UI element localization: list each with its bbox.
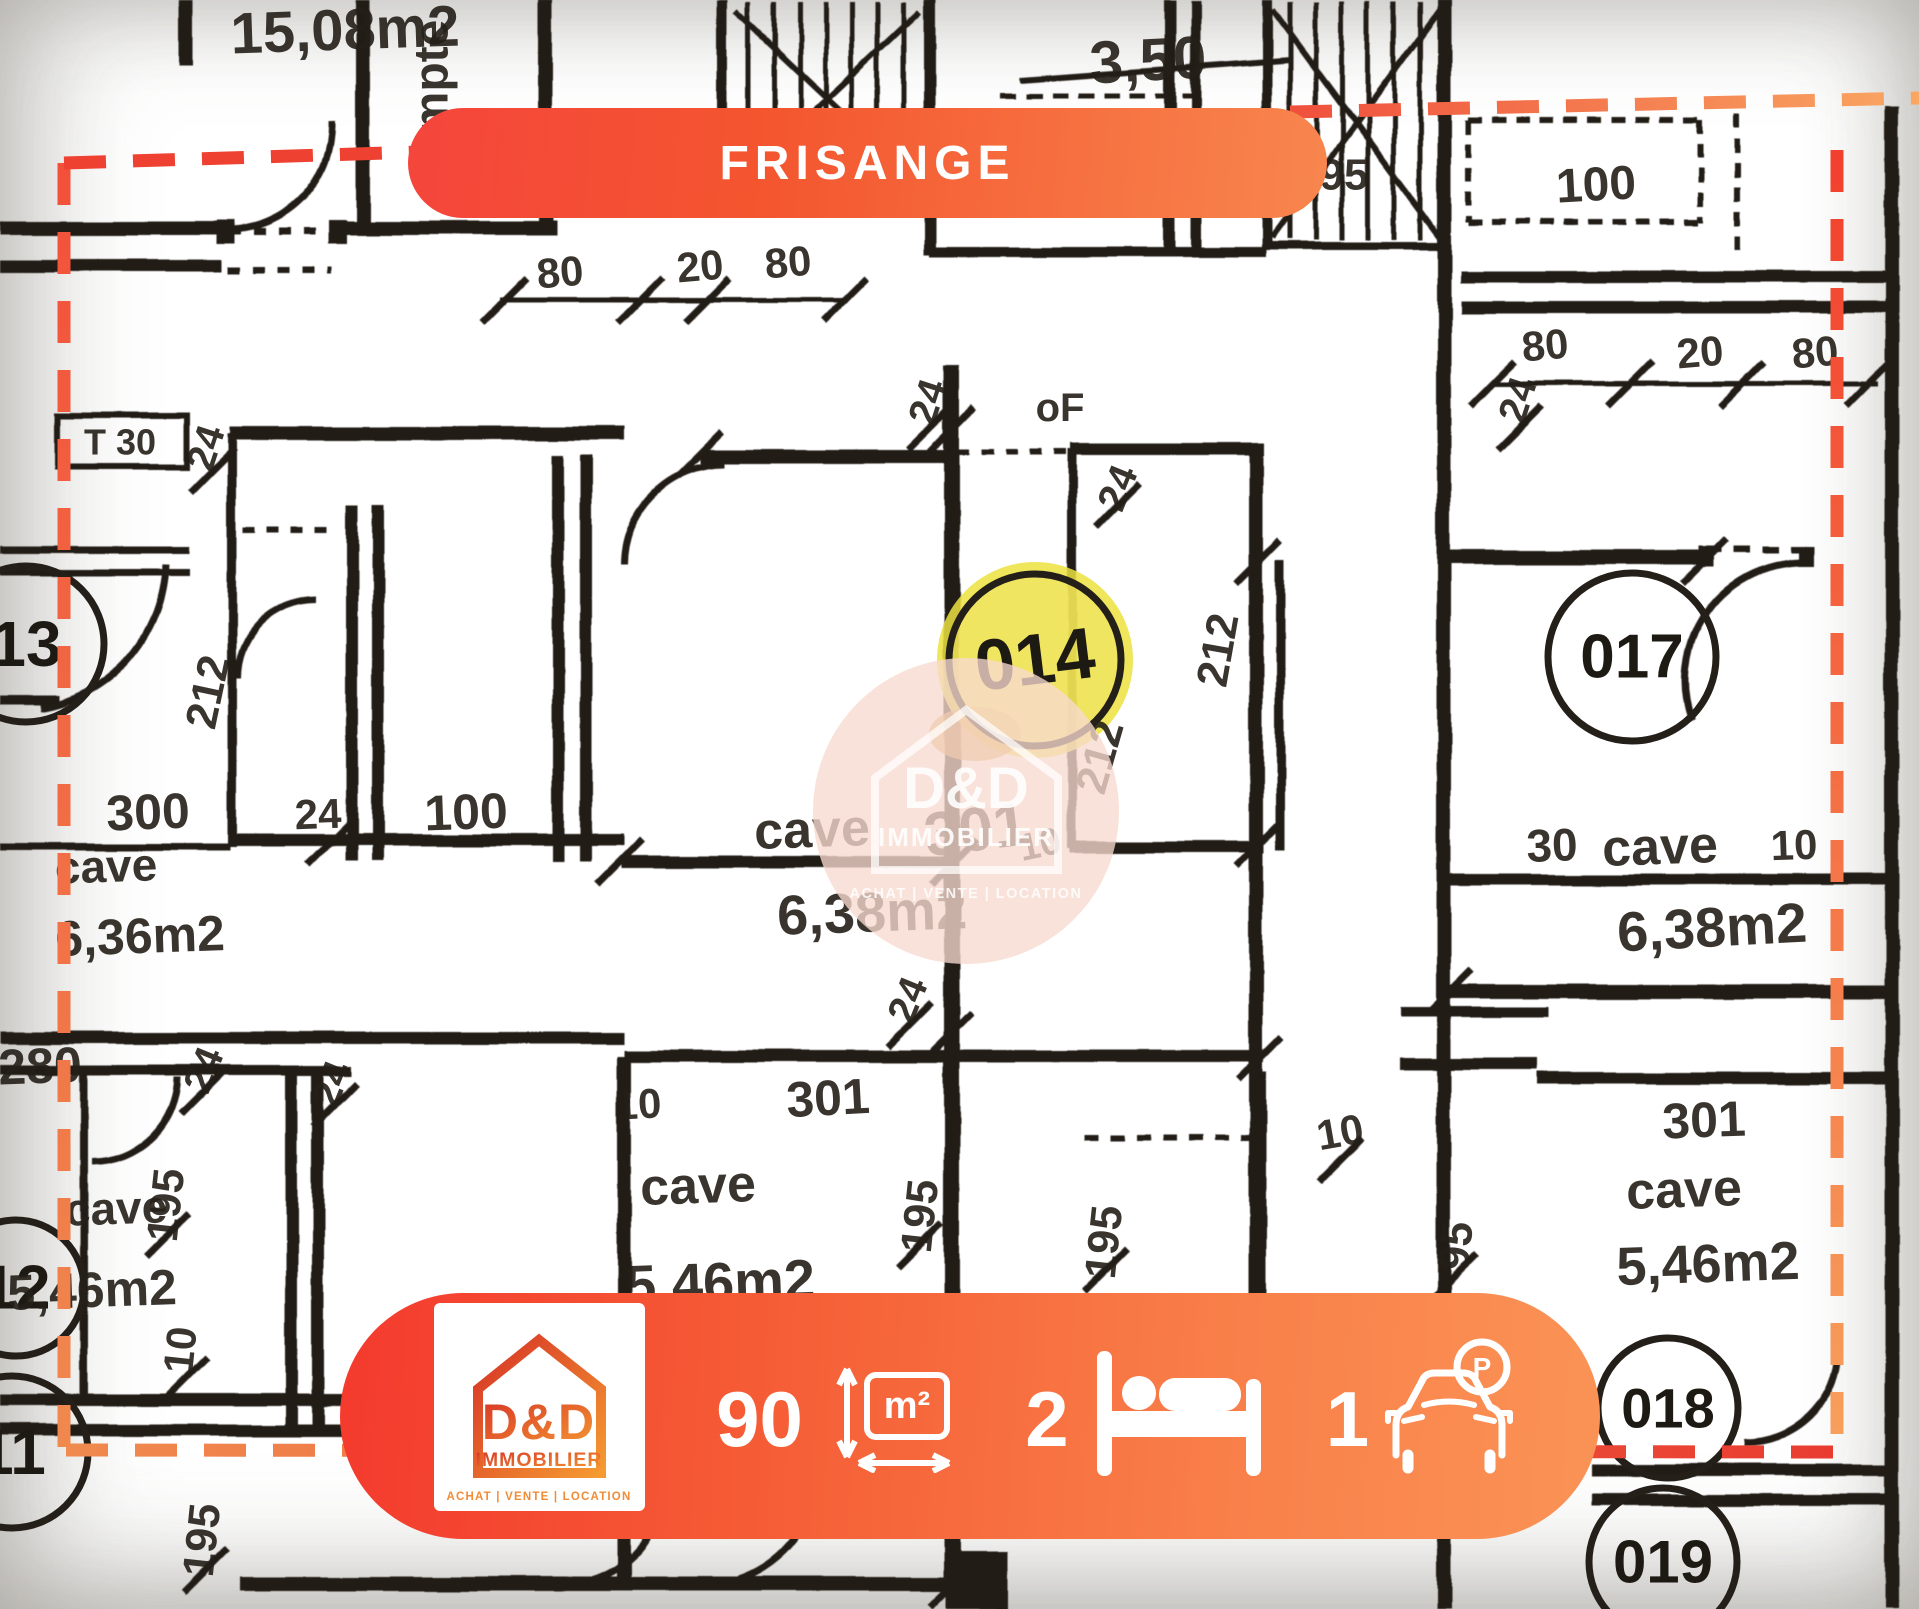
plan-label: 195 <box>174 1501 230 1579</box>
area-value: 90 <box>672 1359 847 1479</box>
plan-label: 100 <box>423 783 508 842</box>
plan-label: 24 <box>175 1040 233 1098</box>
plan-label: cave <box>1601 816 1719 878</box>
plan-label: 80 <box>535 247 586 298</box>
watermark-tagline: ACHAT | VENTE | LOCATION <box>850 886 1083 902</box>
plan-label: 24 <box>303 1054 361 1112</box>
room-number-label: 018 <box>1621 1377 1714 1440</box>
plan-label: 10 <box>613 1079 662 1128</box>
agency-brand: D&D <box>482 1394 596 1450</box>
plan-label: 3,50 <box>1088 23 1208 96</box>
plan-label: 5,46m2 <box>6 1259 177 1321</box>
plan-label: 301 <box>785 1068 871 1128</box>
parking-icon: P <box>1378 1337 1520 1477</box>
parking-badge-letter: P <box>1473 1352 1492 1383</box>
room-number-label: 019 <box>1613 1529 1713 1596</box>
watermark-brand: D&D <box>903 756 1029 821</box>
plan-label: cave <box>639 1155 757 1217</box>
plan-label: 80 <box>1520 320 1571 371</box>
area-icon: m² <box>833 1345 961 1473</box>
plan-label: 20 <box>675 241 726 292</box>
plan-label: 300 <box>105 783 190 842</box>
plan-label: 100 <box>1555 156 1638 213</box>
plan-label: 20 <box>1675 327 1726 378</box>
bed-icon <box>1095 1351 1263 1476</box>
plan-label: 80 <box>763 237 814 288</box>
plan-label: cave <box>1625 1159 1743 1221</box>
property-summary-banner: D&D IMMOBILIER ACHAT | VENTE | LOCATION … <box>340 1293 1600 1539</box>
plan-label: 10 <box>1770 821 1818 870</box>
plan-label: 195 <box>138 1166 194 1244</box>
plan-label: 30 <box>1526 818 1579 872</box>
plan-label: 10 <box>154 1324 206 1375</box>
plan-label: 212 <box>1187 610 1248 691</box>
room-number-label: 017 <box>1580 623 1683 692</box>
room-number-circle: 019 <box>1589 1488 1737 1609</box>
location-banner: FRISANGE <box>408 108 1327 218</box>
plan-label: 24 <box>879 970 937 1028</box>
location-banner-label: FRISANGE <box>719 136 1015 191</box>
room-number-label: 11 <box>0 1416 46 1488</box>
plan-label: 6,36m2 <box>54 905 225 967</box>
room-number-label: 13 <box>0 608 62 680</box>
plan-label: 95 <box>1429 1219 1483 1273</box>
plan-label: 195 <box>892 1177 948 1255</box>
plan-label: oF <box>1036 386 1085 430</box>
agency-watermark-logo: D&D IMMOBILIER ACHAT | VENTE | LOCATION <box>813 658 1119 964</box>
plan-label: 5,46m2 <box>1615 1231 1800 1297</box>
watermark-brand-sub: IMMOBILIER <box>878 822 1054 852</box>
plan-label: 24 <box>294 790 343 839</box>
plan-label: T 30 <box>84 422 156 463</box>
agency-logo-card: D&D IMMOBILIER ACHAT | VENTE | LOCATION <box>434 1303 645 1511</box>
agency-tagline: ACHAT | VENTE | LOCATION <box>447 1491 632 1503</box>
agency-brand-sub: IMMOBILIER <box>476 1449 603 1471</box>
area-unit: m² <box>884 1385 930 1427</box>
plan-label: 301 <box>1661 1091 1746 1150</box>
plan-label: 24 <box>1089 458 1147 516</box>
plan-label: 195 <box>1076 1203 1132 1281</box>
agency-watermark: D&D IMMOBILIER ACHAT | VENTE | LOCATION <box>813 658 1119 964</box>
plan-label: 95 <box>1320 151 1369 200</box>
plan-label: 10 <box>1313 1105 1367 1159</box>
plan-label: 6,38m2 <box>1616 891 1809 964</box>
agency-logo: D&D IMMOBILIER ACHAT | VENTE | LOCATION <box>434 1303 645 1511</box>
